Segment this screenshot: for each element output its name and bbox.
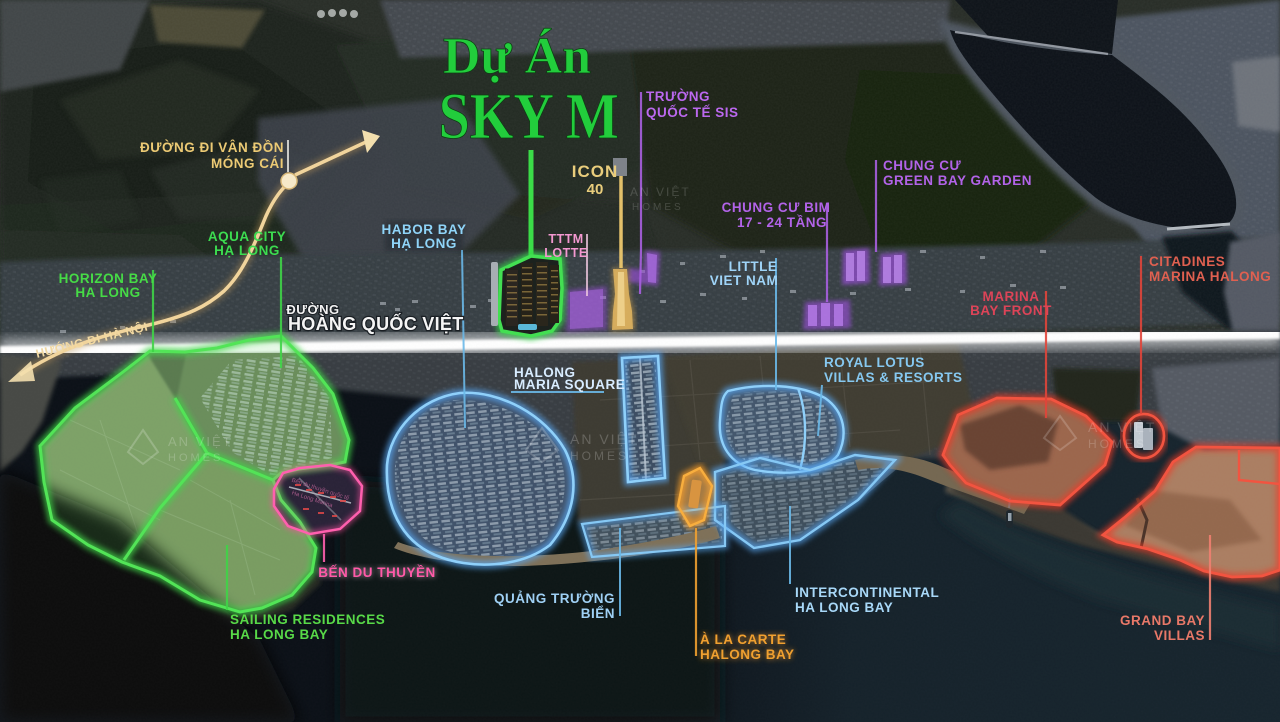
svg-text:HA LONG BAY: HA LONG BAY: [230, 627, 328, 642]
svg-text:MARIA SQUARE: MARIA SQUARE: [514, 377, 625, 392]
svg-text:CHUNG CƯ BIM: CHUNG CƯ BIM: [722, 200, 831, 215]
svg-text:40: 40: [587, 181, 604, 198]
svg-text:SKY M: SKY M: [439, 80, 619, 153]
svg-text:HA LONG: HA LONG: [75, 285, 140, 300]
svg-text:LITTLE: LITTLE: [729, 259, 778, 274]
svg-text:HABOR BAY: HABOR BAY: [381, 222, 466, 237]
svg-text:CITADINES: CITADINES: [1149, 254, 1225, 269]
svg-text:AQUA CITY: AQUA CITY: [208, 229, 286, 244]
svg-text:HA LONG BAY: HA LONG BAY: [795, 600, 893, 615]
svg-text:GREEN BAY GARDEN: GREEN BAY GARDEN: [883, 173, 1032, 188]
svg-text:TRƯỜNG: TRƯỜNG: [646, 89, 710, 104]
svg-text:LOTTE: LOTTE: [544, 246, 587, 260]
svg-text:ĐƯỜNG ĐI VÂN ĐỒN: ĐƯỜNG ĐI VÂN ĐỒN: [140, 140, 284, 155]
svg-text:HALONG BAY: HALONG BAY: [700, 647, 795, 662]
svg-text:MÓNG CÁI: MÓNG CÁI: [211, 156, 284, 171]
svg-text:CHUNG CƯ: CHUNG CƯ: [883, 158, 961, 173]
svg-text:GRAND BAY: GRAND BAY: [1120, 613, 1205, 628]
svg-text:À LA CARTE: À LA CARTE: [700, 632, 786, 647]
svg-text:TTTM: TTTM: [548, 232, 583, 246]
svg-text:HOMES: HOMES: [168, 452, 223, 464]
svg-text:QUẢNG TRƯỜNG: QUẢNG TRƯỜNG: [494, 591, 615, 606]
svg-text:HOMES: HOMES: [632, 202, 684, 213]
svg-text:INTERCONTINENTAL: INTERCONTINENTAL: [795, 585, 939, 600]
svg-text:AN VIỆT: AN VIỆT: [570, 431, 638, 447]
svg-text:ROYAL LOTUS: ROYAL LOTUS: [824, 355, 925, 370]
svg-text:BẾN DU THUYỀN: BẾN DU THUYỀN: [318, 565, 436, 580]
svg-text:AN VIỆT: AN VIỆT: [630, 184, 691, 199]
svg-text:VILLAS: VILLAS: [1154, 628, 1205, 643]
svg-text:HORIZON BAY: HORIZON BAY: [59, 271, 158, 286]
svg-text:HOMES: HOMES: [570, 449, 629, 463]
svg-text:VIET NAM: VIET NAM: [710, 273, 779, 288]
svg-text:BAY FRONT: BAY FRONT: [970, 303, 1052, 318]
svg-text:BIỂN: BIỂN: [581, 606, 615, 621]
svg-text:17 - 24 TẦNG: 17 - 24 TẦNG: [737, 215, 827, 230]
svg-text:AN VIỆT: AN VIỆT: [168, 434, 233, 449]
svg-text:HẠ LONG: HẠ LONG: [391, 236, 457, 251]
svg-text:HOÀNG QUỐC VIỆT: HOÀNG QUỐC VIỆT: [288, 313, 464, 334]
svg-text:MARINA HALONG: MARINA HALONG: [1149, 269, 1271, 284]
svg-text:VILLAS & RESORTS: VILLAS & RESORTS: [824, 370, 963, 385]
svg-text:AN VIỆT: AN VIỆT: [1088, 419, 1156, 435]
svg-text:Dự Án: Dự Án: [443, 27, 591, 85]
svg-text:ICON: ICON: [572, 162, 619, 181]
svg-text:HẠ LONG: HẠ LONG: [214, 243, 280, 258]
svg-text:SAILING RESIDENCES: SAILING RESIDENCES: [230, 612, 385, 627]
svg-text:QUỐC TẾ SIS: QUỐC TẾ SIS: [646, 105, 739, 120]
svg-text:HOMES: HOMES: [1088, 437, 1147, 451]
svg-text:MARINA: MARINA: [983, 289, 1040, 304]
